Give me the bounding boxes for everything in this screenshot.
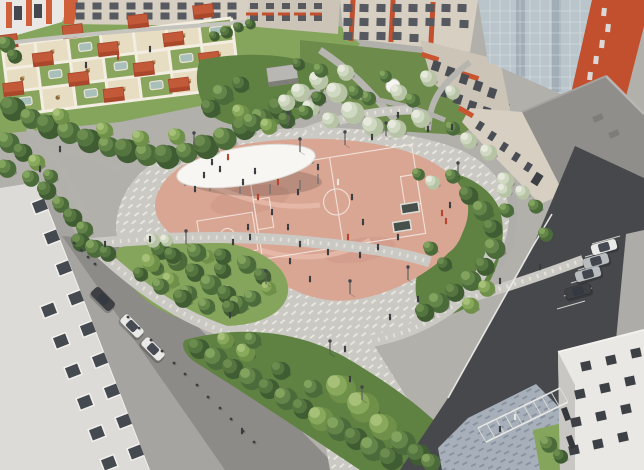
win-topa <box>110 3 119 10</box>
lintels-topb <box>294 13 306 16</box>
win-topa <box>161 13 170 20</box>
win-red <box>601 8 607 16</box>
bollard <box>173 362 176 365</box>
person <box>241 428 243 435</box>
win-topc <box>343 4 352 12</box>
win-topc <box>441 4 450 12</box>
person <box>203 172 205 179</box>
person <box>254 168 256 175</box>
bollard <box>127 316 130 319</box>
bollard <box>219 407 222 410</box>
win-topa <box>178 13 187 20</box>
kg-red-canopy <box>127 14 148 29</box>
window <box>14 6 22 20</box>
person <box>149 46 151 53</box>
bollard <box>196 384 199 387</box>
win-topb <box>298 3 306 9</box>
win-topb <box>250 3 258 9</box>
win-topa <box>93 13 102 20</box>
bollard <box>253 441 256 444</box>
lintels-topb <box>262 13 274 16</box>
kg-red-canopy <box>68 71 89 86</box>
person <box>242 179 244 186</box>
win-topb <box>282 3 290 9</box>
person <box>371 134 373 141</box>
win-red <box>605 24 611 32</box>
person <box>117 54 119 61</box>
win-red <box>587 72 593 80</box>
person <box>362 219 364 226</box>
win-topc <box>343 32 352 40</box>
win-topc <box>425 18 434 26</box>
lintels-topb <box>246 13 258 16</box>
lintels-topb <box>310 13 322 16</box>
bollard <box>207 396 210 399</box>
person <box>427 126 429 133</box>
win-topb <box>266 3 274 9</box>
person <box>257 194 259 201</box>
kg-red-canopy <box>163 31 184 46</box>
person <box>149 236 151 243</box>
kg-red-canopy <box>103 87 124 102</box>
person <box>389 314 391 321</box>
kg-red-canopy <box>193 4 214 19</box>
facade-accent <box>46 0 52 24</box>
person <box>297 189 299 196</box>
person <box>499 278 501 285</box>
person <box>445 218 447 225</box>
win-topa <box>144 3 153 10</box>
win-topa <box>76 3 85 10</box>
courtyard-aerial-render <box>0 0 644 470</box>
person <box>499 426 501 433</box>
person <box>451 124 453 131</box>
kg-red-canopy <box>3 81 24 96</box>
bollard <box>94 263 97 266</box>
person <box>287 224 289 231</box>
win-topa <box>93 3 102 10</box>
win-topb <box>314 3 322 9</box>
bollard <box>230 418 233 421</box>
person <box>271 209 273 216</box>
kg-red-canopy <box>97 41 118 56</box>
person <box>219 166 221 173</box>
win-topc <box>409 34 418 42</box>
win-topc <box>343 18 352 26</box>
win-topc <box>408 18 417 26</box>
win-topc <box>441 18 450 26</box>
win-topc <box>359 4 368 12</box>
kg-sandpit <box>149 80 163 90</box>
person <box>417 296 419 303</box>
person <box>514 414 516 421</box>
person <box>377 244 379 251</box>
kg-sandpit <box>78 42 92 52</box>
win-topc <box>392 4 401 12</box>
person <box>307 239 309 246</box>
kg-red-canopy <box>133 61 154 76</box>
bollard <box>138 327 141 330</box>
person <box>397 234 399 241</box>
win-topb <box>298 15 306 21</box>
win-topa <box>127 3 136 10</box>
kg-sandpit <box>114 61 128 71</box>
win-topc <box>408 4 417 12</box>
person <box>277 179 279 186</box>
person <box>104 241 106 248</box>
win-topc <box>392 32 401 40</box>
person <box>229 312 231 319</box>
win-topc <box>359 32 368 40</box>
person <box>211 159 213 166</box>
person <box>441 210 443 217</box>
win-topa <box>110 13 119 20</box>
kg-sandpit <box>179 53 193 63</box>
win-topb <box>314 15 322 21</box>
render-stage <box>0 0 644 470</box>
bollard <box>87 256 90 259</box>
person <box>327 249 329 256</box>
person <box>449 202 451 209</box>
person <box>247 224 249 231</box>
win-topa <box>178 3 187 10</box>
red-lintels <box>246 13 322 16</box>
win-topa <box>161 3 170 10</box>
win-topb <box>282 15 290 21</box>
bollard <box>73 242 76 245</box>
person <box>289 258 291 265</box>
facade-accent <box>6 2 12 28</box>
kg-red-canopy <box>32 51 53 66</box>
win-topb <box>266 15 274 21</box>
win-topc <box>376 18 385 26</box>
person <box>249 234 251 241</box>
window <box>34 4 42 18</box>
bollard <box>150 339 153 342</box>
person <box>85 62 87 69</box>
person <box>194 186 196 193</box>
person <box>227 154 229 161</box>
facade-accent <box>26 0 32 26</box>
person <box>351 194 353 201</box>
kg-sandpit <box>84 88 98 98</box>
person <box>317 164 319 171</box>
win-topc <box>425 4 434 12</box>
win-topc <box>392 18 401 26</box>
win-red <box>593 56 599 64</box>
person <box>309 276 311 283</box>
person <box>39 166 41 173</box>
person <box>344 346 346 353</box>
person <box>337 179 339 186</box>
kg-red-canopy <box>168 77 189 92</box>
bollard <box>184 373 187 376</box>
win-topa <box>228 3 237 10</box>
win-topc <box>459 20 468 28</box>
bollard <box>161 350 164 353</box>
bollard <box>80 249 83 252</box>
win-topc <box>457 4 466 12</box>
person <box>397 112 399 119</box>
win-topa <box>76 13 85 20</box>
win-topc <box>376 32 385 40</box>
win-topc <box>359 18 368 26</box>
lintels-topb <box>278 13 290 16</box>
person <box>232 239 234 246</box>
person <box>347 234 349 241</box>
person <box>299 241 301 248</box>
person <box>359 252 361 259</box>
person <box>349 376 351 383</box>
person <box>539 264 541 271</box>
person <box>59 146 61 153</box>
kg-sandpit <box>48 69 62 79</box>
win-red <box>599 40 605 48</box>
win-topc <box>376 4 385 12</box>
